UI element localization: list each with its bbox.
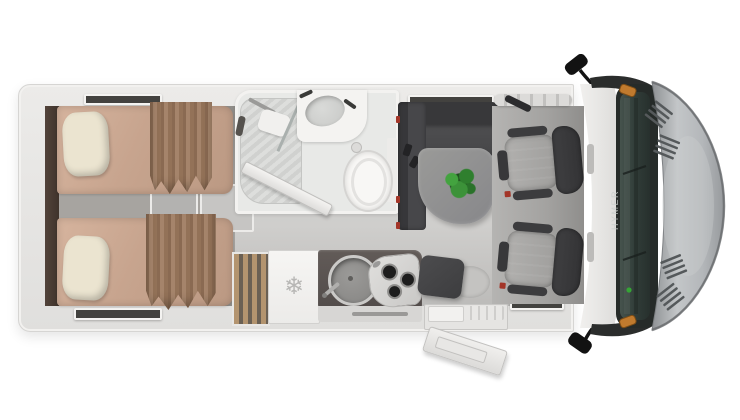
side-mirror-top: [563, 54, 590, 77]
flush-button: [351, 142, 362, 153]
curtain-bottom: [146, 214, 216, 310]
inspection-sticker: [626, 287, 631, 292]
seatbelt-anchor: [396, 222, 400, 229]
fridge: ❄: [268, 250, 320, 324]
faucet-knob: [322, 293, 327, 298]
curtain-top: [150, 102, 212, 194]
seatbelt-tag: [499, 282, 506, 289]
cab-front: HYMER: [528, 54, 740, 360]
entry-step: [428, 306, 464, 322]
hob-control: [372, 260, 382, 269]
glass-shade: [634, 98, 638, 314]
snowflake-icon: ❄: [284, 275, 304, 299]
brand-text: HYMER: [610, 190, 620, 230]
entry-door-open: [422, 326, 508, 376]
plant: [438, 164, 484, 208]
hob-burner-2: [399, 271, 417, 289]
dash-vent-top: [587, 144, 594, 174]
pillow-bottom: [61, 235, 110, 301]
toilet-seat: [351, 158, 387, 206]
seatbelt-tag: [504, 191, 511, 198]
seatbelt-anchor: [396, 196, 400, 203]
hob-burner-1: [380, 263, 399, 282]
seatbelt-anchor: [396, 116, 400, 123]
window-bedroom-bottom: [74, 308, 162, 320]
bathroom: [235, 90, 399, 214]
hob-burner-3: [386, 283, 402, 299]
floorplan-canvas: ❄: [0, 0, 740, 420]
sink-drain: [348, 276, 353, 281]
entry-sill: [464, 306, 504, 320]
kitchen-drawer: [352, 312, 408, 316]
dash-vent-bottom: [587, 232, 594, 262]
wardrobe-shelves: [232, 252, 270, 326]
pillow-top: [61, 111, 110, 177]
entry-door-panel: [435, 336, 488, 363]
glass-reflection: [624, 98, 630, 314]
ottoman: [417, 254, 466, 299]
